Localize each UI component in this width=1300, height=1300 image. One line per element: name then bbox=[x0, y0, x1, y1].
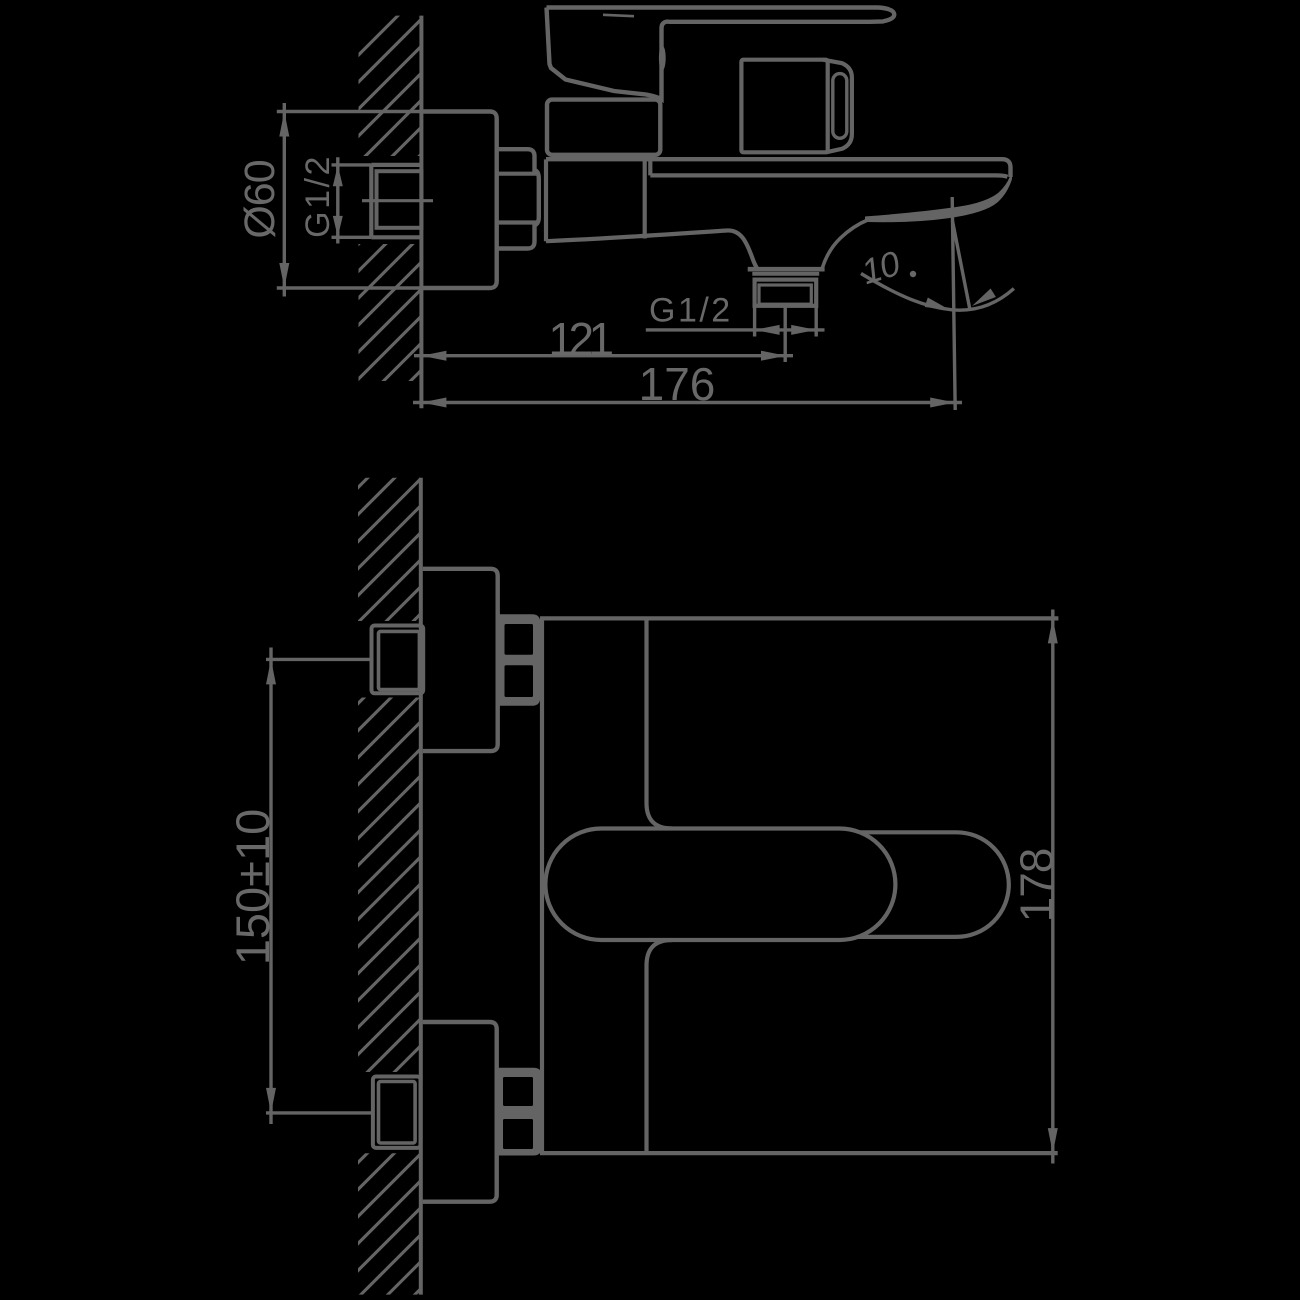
svg-text:G1/2: G1/2 bbox=[649, 292, 733, 330]
svg-text:Ø60: Ø60 bbox=[236, 160, 284, 238]
svg-text:150±10: 150±10 bbox=[226, 809, 279, 966]
svg-text:176: 176 bbox=[639, 358, 716, 410]
svg-text:178: 178 bbox=[1011, 849, 1063, 923]
svg-text:G1/2: G1/2 bbox=[299, 154, 337, 238]
svg-text:121: 121 bbox=[548, 313, 612, 365]
